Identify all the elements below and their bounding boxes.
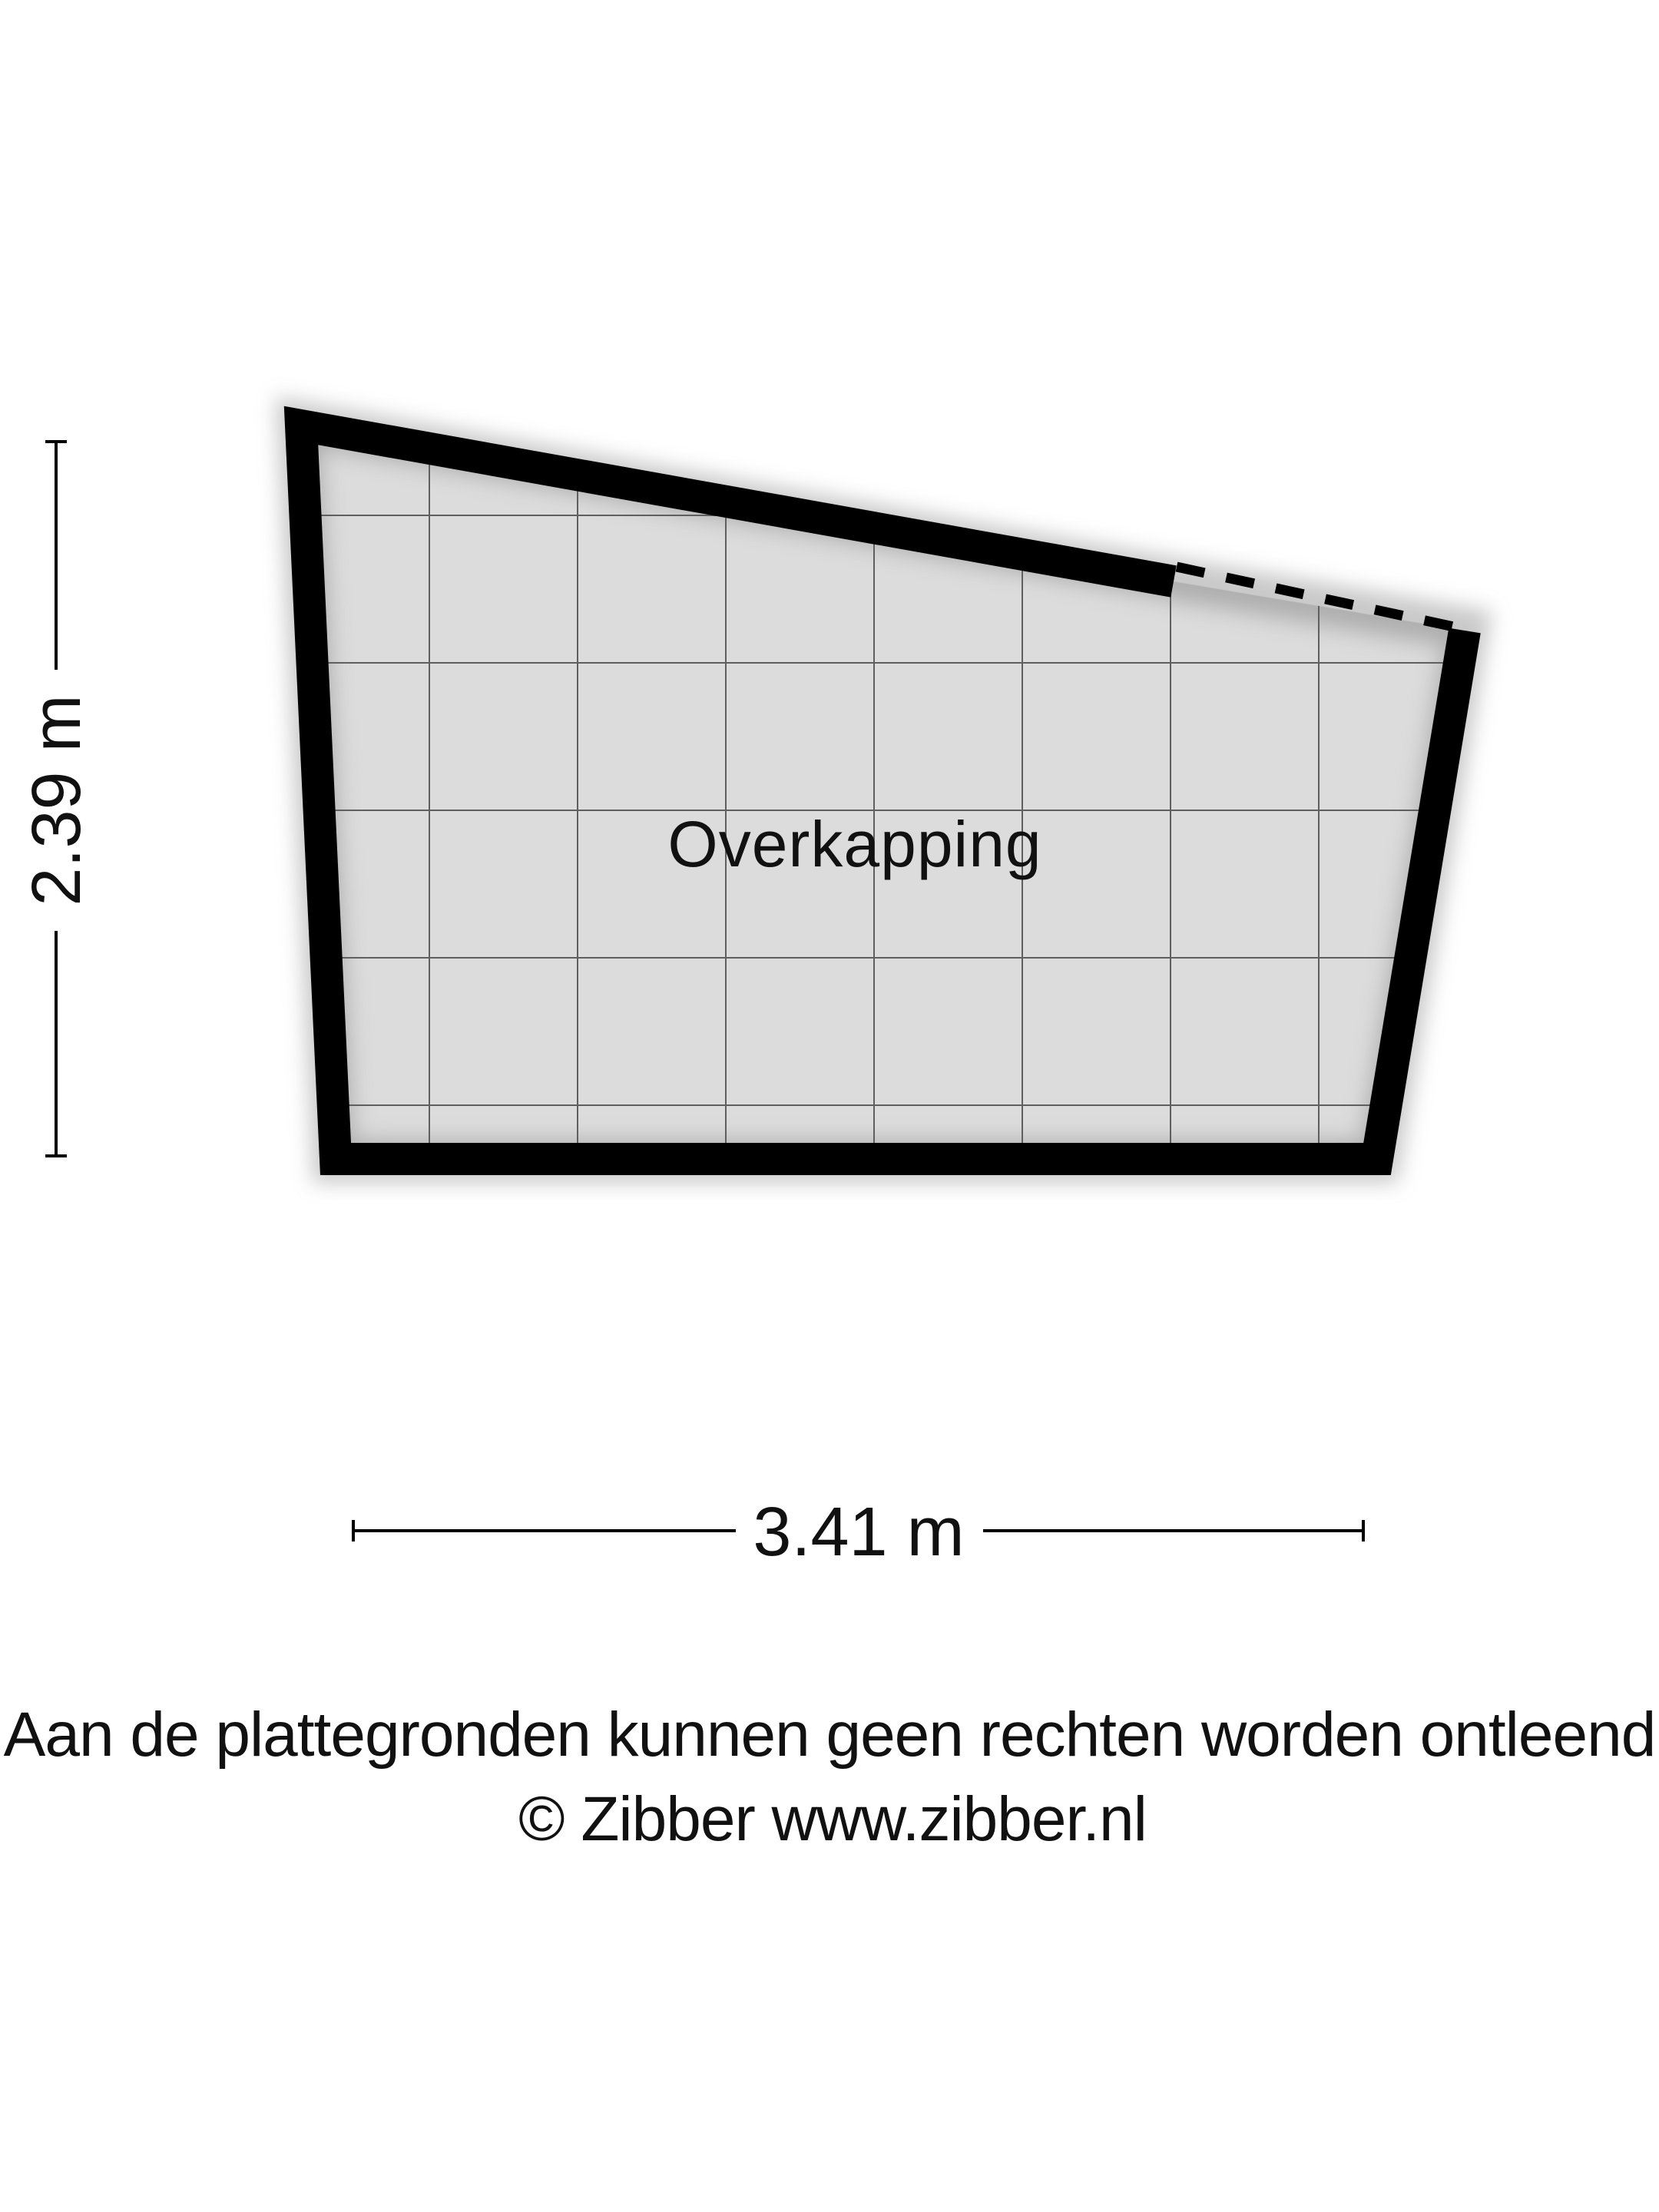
room-label: Overkapping [667,808,1041,880]
disclaimer-text: Aan de plattegronden kunnen geen rechten… [4,1700,1656,1770]
copyright-text: © Zibber www.zibber.nl [518,1784,1147,1854]
height-dimension-label: 2.39 m [18,694,95,906]
floorplan-canvas: Overkapping 2.39 m 3.41 m Aan de platteg… [0,0,1659,2212]
width-dimension-label: 3.41 m [753,1494,964,1571]
floorplan-page: Overkapping 2.39 m 3.41 m Aan de platteg… [0,0,1659,2212]
